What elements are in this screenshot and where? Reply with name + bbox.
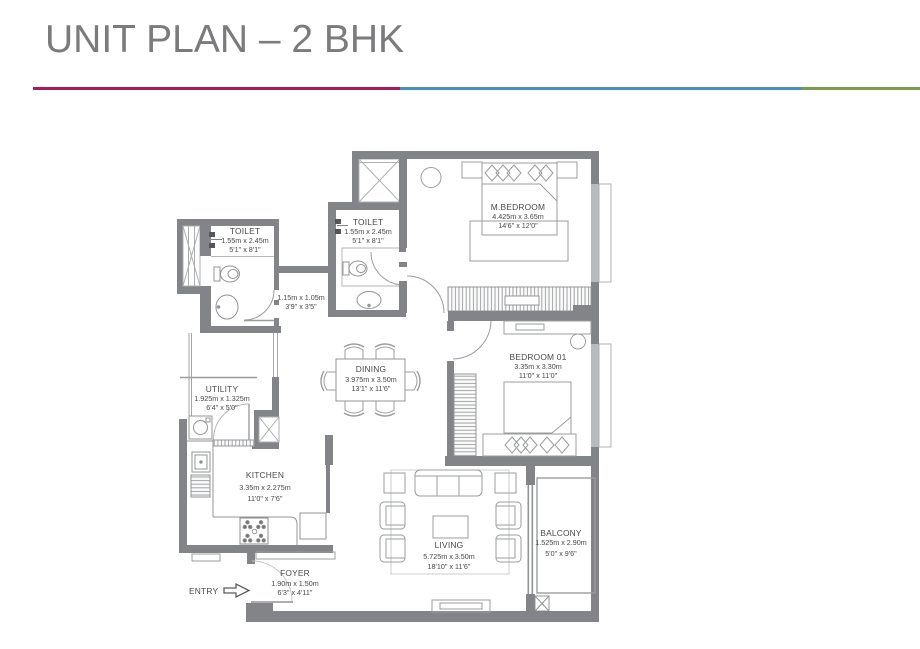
svg-text:3'9" x 3'5": 3'9" x 3'5" xyxy=(285,302,317,311)
svg-text:5'0" x 9'6": 5'0" x 9'6" xyxy=(545,549,577,558)
svg-text:1.55m x 2.45m: 1.55m x 2.45m xyxy=(344,227,392,236)
svg-text:UTILITY: UTILITY xyxy=(206,384,239,394)
svg-text:11'0" x 7'6": 11'0" x 7'6" xyxy=(248,494,283,503)
svg-text:13'1" x 11'6": 13'1" x 11'6" xyxy=(352,384,391,393)
svg-text:TOILET: TOILET xyxy=(353,217,383,227)
svg-text:FOYER: FOYER xyxy=(280,568,310,578)
svg-text:18'10" x 11'6": 18'10" x 11'6" xyxy=(428,562,471,571)
svg-text:BEDROOM 01: BEDROOM 01 xyxy=(510,352,567,362)
svg-text:6'4" x 5'0": 6'4" x 5'0" xyxy=(206,403,238,412)
svg-text:1.55m x 2.45m: 1.55m x 2.45m xyxy=(221,236,269,245)
svg-text:1.525m x 2.90m: 1.525m x 2.90m xyxy=(535,538,587,547)
svg-text:1.15m x 1.05m: 1.15m x 1.05m xyxy=(277,293,325,302)
svg-text:4.425m x 3.65m: 4.425m x 3.65m xyxy=(492,212,544,221)
svg-text:KITCHEN: KITCHEN xyxy=(246,470,284,480)
svg-text:11'0" x 11'0": 11'0" x 11'0" xyxy=(519,371,558,380)
svg-text:TOILET: TOILET xyxy=(230,226,260,236)
svg-text:1.90m x 1.50m: 1.90m x 1.50m xyxy=(271,579,319,588)
svg-text:5.725m x 3.50m: 5.725m x 3.50m xyxy=(423,552,475,561)
svg-text:BALCONY: BALCONY xyxy=(540,528,582,538)
svg-text:5'1" x 8'1": 5'1" x 8'1" xyxy=(229,245,261,254)
svg-text:3.975m x 3.50m: 3.975m x 3.50m xyxy=(345,375,397,384)
svg-text:3.35m x 3.30m: 3.35m x 3.30m xyxy=(514,362,562,371)
svg-text:ENTRY: ENTRY xyxy=(189,586,218,596)
svg-text:5'1" x 8'1": 5'1" x 8'1" xyxy=(352,236,384,245)
svg-text:M.BEDROOM: M.BEDROOM xyxy=(491,202,545,212)
svg-text:DINING: DINING xyxy=(356,364,387,374)
svg-text:14'6" x 12'0": 14'6" x 12'0" xyxy=(498,221,538,230)
svg-text:LIVING: LIVING xyxy=(435,540,464,550)
svg-text:6'3" x 4'11": 6'3" x 4'11" xyxy=(278,588,313,597)
svg-text:3.35m x 2.275m: 3.35m x 2.275m xyxy=(239,483,291,492)
svg-text:1.925m x 1.325m: 1.925m x 1.325m xyxy=(194,394,250,403)
